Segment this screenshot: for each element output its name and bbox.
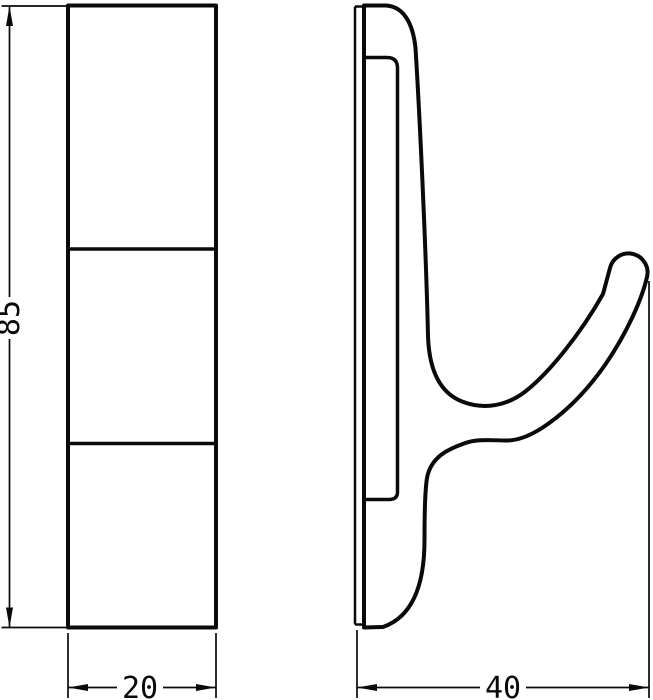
arrowhead-right [196, 684, 216, 691]
dimension-height-label: 85 [0, 300, 27, 336]
mounting-plate-inner-edge [364, 58, 398, 500]
side-view [355, 6, 648, 628]
dimension-width: 20 [68, 633, 216, 700]
dimension-width-label: 20 [122, 671, 158, 700]
hook-body-profile [364, 6, 648, 628]
arrowhead-right [629, 684, 649, 691]
arrowhead-down [6, 608, 13, 628]
drawing-canvas: 85 20 40 [0, 0, 653, 700]
arrowhead-left [357, 684, 377, 691]
arrowhead-left [68, 684, 88, 691]
front-view [68, 6, 216, 628]
front-view-outline [68, 6, 216, 628]
dimension-height: 85 [0, 6, 66, 628]
dimension-depth-label: 40 [485, 671, 521, 700]
dimension-depth: 40 [357, 281, 649, 700]
arrowhead-up [6, 6, 13, 26]
technical-drawing: 85 20 40 [0, 0, 653, 700]
wall-plate-strip [355, 7, 362, 625]
